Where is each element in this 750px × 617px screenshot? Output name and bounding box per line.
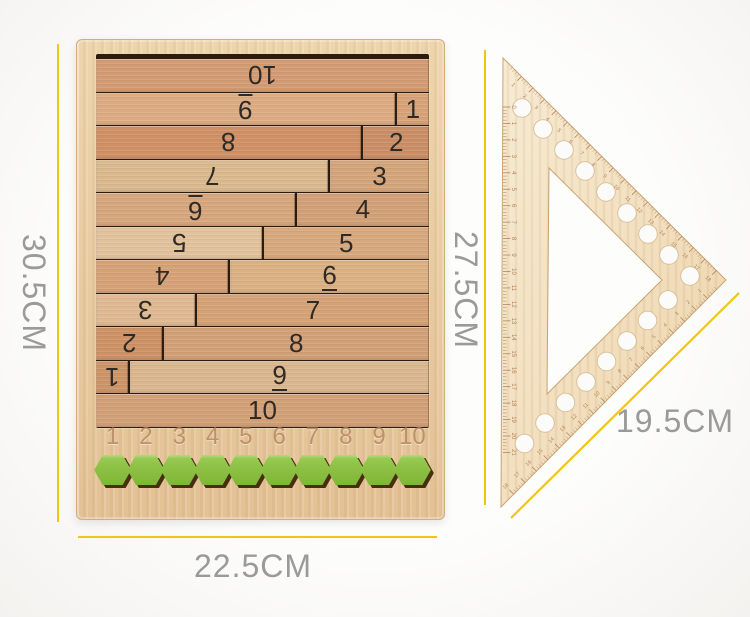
engraved-scale-number: 10 <box>397 423 427 451</box>
rod-number-label: 2 <box>389 129 403 155</box>
ruler-hole <box>515 434 534 453</box>
number-rod: 9 <box>96 93 395 126</box>
ruler-tick-label: 19 <box>510 416 516 423</box>
number-rod: 6 <box>96 193 295 226</box>
rod-number-label: 6 <box>188 195 202 224</box>
number-rod: 4 <box>96 260 228 293</box>
product-photo-stage: 1091827364554637281910 12345678910 30.5C… <box>0 0 750 617</box>
ruler-hole <box>638 311 657 330</box>
ruler-tick-label: 13 <box>510 318 516 325</box>
engraved-scale-number: 7 <box>297 423 327 451</box>
number-rod: 10 <box>96 394 429 427</box>
rod-number-label: 7 <box>306 297 320 323</box>
ruler-tick-label: 12 <box>510 301 516 308</box>
rod-number-label: 6 <box>322 262 336 291</box>
ruler-tick-label: 20 <box>510 433 516 440</box>
number-rod: 5 <box>264 227 430 260</box>
number-rod: 5 <box>96 227 262 260</box>
engraved-scale-number: 2 <box>131 423 161 451</box>
rod-number-label: 10 <box>248 62 277 88</box>
ruler-hole <box>618 204 637 223</box>
ruler-hole <box>639 225 658 244</box>
number-rod: 7 <box>96 160 328 193</box>
dimension-line-board-height <box>57 44 59 522</box>
rod-number-label: 2 <box>122 330 136 356</box>
engraved-scale-number: 3 <box>164 423 194 451</box>
ruler-tick-label: 15 <box>510 350 516 357</box>
engraved-scale-number: 4 <box>198 423 228 451</box>
rod-number-label: 3 <box>138 297 152 323</box>
rod-number-label: 1 <box>105 364 119 390</box>
number-rod: 2 <box>96 327 162 360</box>
engraved-scale-number: 1 <box>98 423 128 451</box>
ruler-tick-label: 21 <box>510 449 516 456</box>
number-rod: 2 <box>363 126 429 159</box>
number-rod: 6 <box>230 260 429 293</box>
ruler-hole <box>618 332 637 351</box>
counting-board: 1091827364554637281910 12345678910 <box>76 39 445 520</box>
engraved-scale-number: 8 <box>331 423 361 451</box>
ruler-tick-label: 11 <box>510 285 516 292</box>
number-rod: 10 <box>96 59 429 92</box>
ruler-hole <box>659 291 678 310</box>
rod-number-label: 9 <box>272 362 286 391</box>
dimension-label-board-height: 30.5CM <box>17 193 51 393</box>
ruler-hole <box>660 246 679 265</box>
rod-number-label: 3 <box>372 163 386 189</box>
engraved-scale-number: 5 <box>231 423 261 451</box>
rod-number-label: 8 <box>289 330 303 356</box>
rod-number-label: 5 <box>172 230 186 256</box>
number-rod: 3 <box>96 294 195 327</box>
ruler-tick-label: 17 <box>510 383 516 390</box>
rod-number-label: 4 <box>356 196 370 222</box>
ruler-hole <box>597 352 616 371</box>
ruler-hole <box>534 120 553 139</box>
rod-number-label: 8 <box>221 129 235 155</box>
rod-number-label: 5 <box>339 230 353 256</box>
triangle-ruler: 0123456789101112131415161718192021123456… <box>450 30 750 530</box>
number-rod: 1 <box>96 361 128 394</box>
number-rod: 3 <box>330 160 429 193</box>
number-rod: 4 <box>297 193 429 226</box>
ruler-hole <box>556 393 575 412</box>
ruler-tick-label: 10 <box>510 268 516 275</box>
dimension-label-board-width: 22.5CM <box>153 549 353 583</box>
rod-number-label: 4 <box>155 263 169 289</box>
rod-number-label: 7 <box>205 163 219 189</box>
engraved-scale-number: 9 <box>364 423 394 451</box>
ruler-tick-label: 16 <box>510 367 516 374</box>
number-rod: 8 <box>164 327 429 360</box>
number-rod: 8 <box>96 126 361 159</box>
ruler-hole <box>536 414 555 433</box>
number-rod: 9 <box>130 361 429 394</box>
rod-number-label: 1 <box>406 96 420 122</box>
engraved-scale-number: 6 <box>264 423 294 451</box>
ruler-tick-label: 18 <box>510 400 516 407</box>
rod-number-label: 10 <box>248 397 277 423</box>
ruler-tick-label: 14 <box>510 334 516 341</box>
ruler-hole <box>577 373 596 392</box>
dimension-line-board-width <box>78 536 437 538</box>
ruler-hole <box>597 183 616 202</box>
rod-number-label: 9 <box>238 94 252 123</box>
number-rod: 1 <box>397 93 429 126</box>
number-rod: 7 <box>197 294 429 327</box>
rod-recess: 1091827364554637281910 <box>96 54 429 428</box>
